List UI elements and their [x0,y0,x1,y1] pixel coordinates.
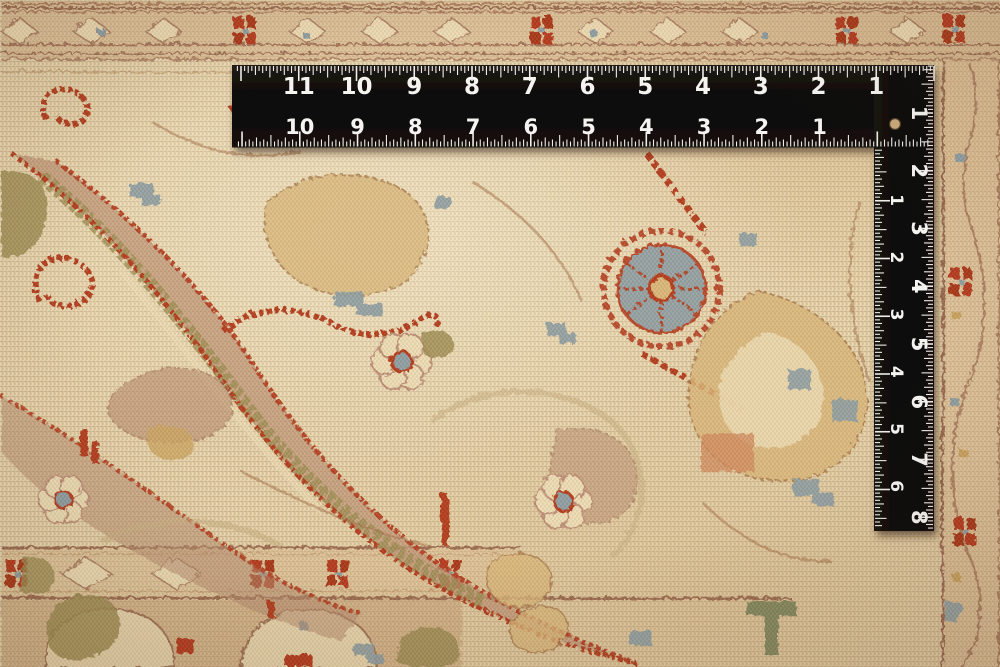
svg-text:4: 4 [907,279,931,294]
svg-text:8: 8 [408,115,423,139]
svg-text:5: 5 [637,74,653,100]
svg-text:6: 6 [579,74,595,100]
svg-text:3: 3 [753,74,769,100]
svg-text:2: 2 [886,251,906,263]
carpenter-square: 11109876543211098765432112345678123456 [0,0,1000,667]
svg-text:3: 3 [886,309,906,321]
svg-text:1: 1 [886,194,906,206]
square-hanging-hole [890,119,901,130]
svg-text:3: 3 [907,221,931,236]
svg-text:4: 4 [639,115,654,139]
svg-text:1: 1 [907,106,931,121]
svg-text:1: 1 [812,115,827,139]
svg-text:8: 8 [907,510,931,525]
svg-text:4: 4 [695,74,711,100]
svg-text:10: 10 [340,74,372,100]
svg-text:7: 7 [522,74,538,100]
svg-text:8: 8 [464,74,480,100]
svg-text:2: 2 [810,74,826,100]
svg-text:7: 7 [466,115,481,139]
svg-text:5: 5 [907,337,931,352]
svg-text:4: 4 [886,366,906,378]
svg-text:5: 5 [581,115,596,139]
svg-text:2: 2 [907,163,931,178]
svg-text:1: 1 [868,74,884,100]
svg-text:10: 10 [285,115,314,139]
svg-text:7: 7 [907,452,931,467]
svg-text:3: 3 [697,115,712,139]
svg-text:6: 6 [886,480,906,492]
rug-photo: 11109876543211098765432112345678123456 [0,0,1000,667]
svg-text:2: 2 [754,115,769,139]
svg-text:6: 6 [907,394,931,409]
svg-text:5: 5 [886,423,906,435]
svg-text:9: 9 [350,115,365,139]
svg-text:11: 11 [283,74,315,100]
svg-text:9: 9 [406,74,422,100]
svg-text:6: 6 [523,115,538,139]
